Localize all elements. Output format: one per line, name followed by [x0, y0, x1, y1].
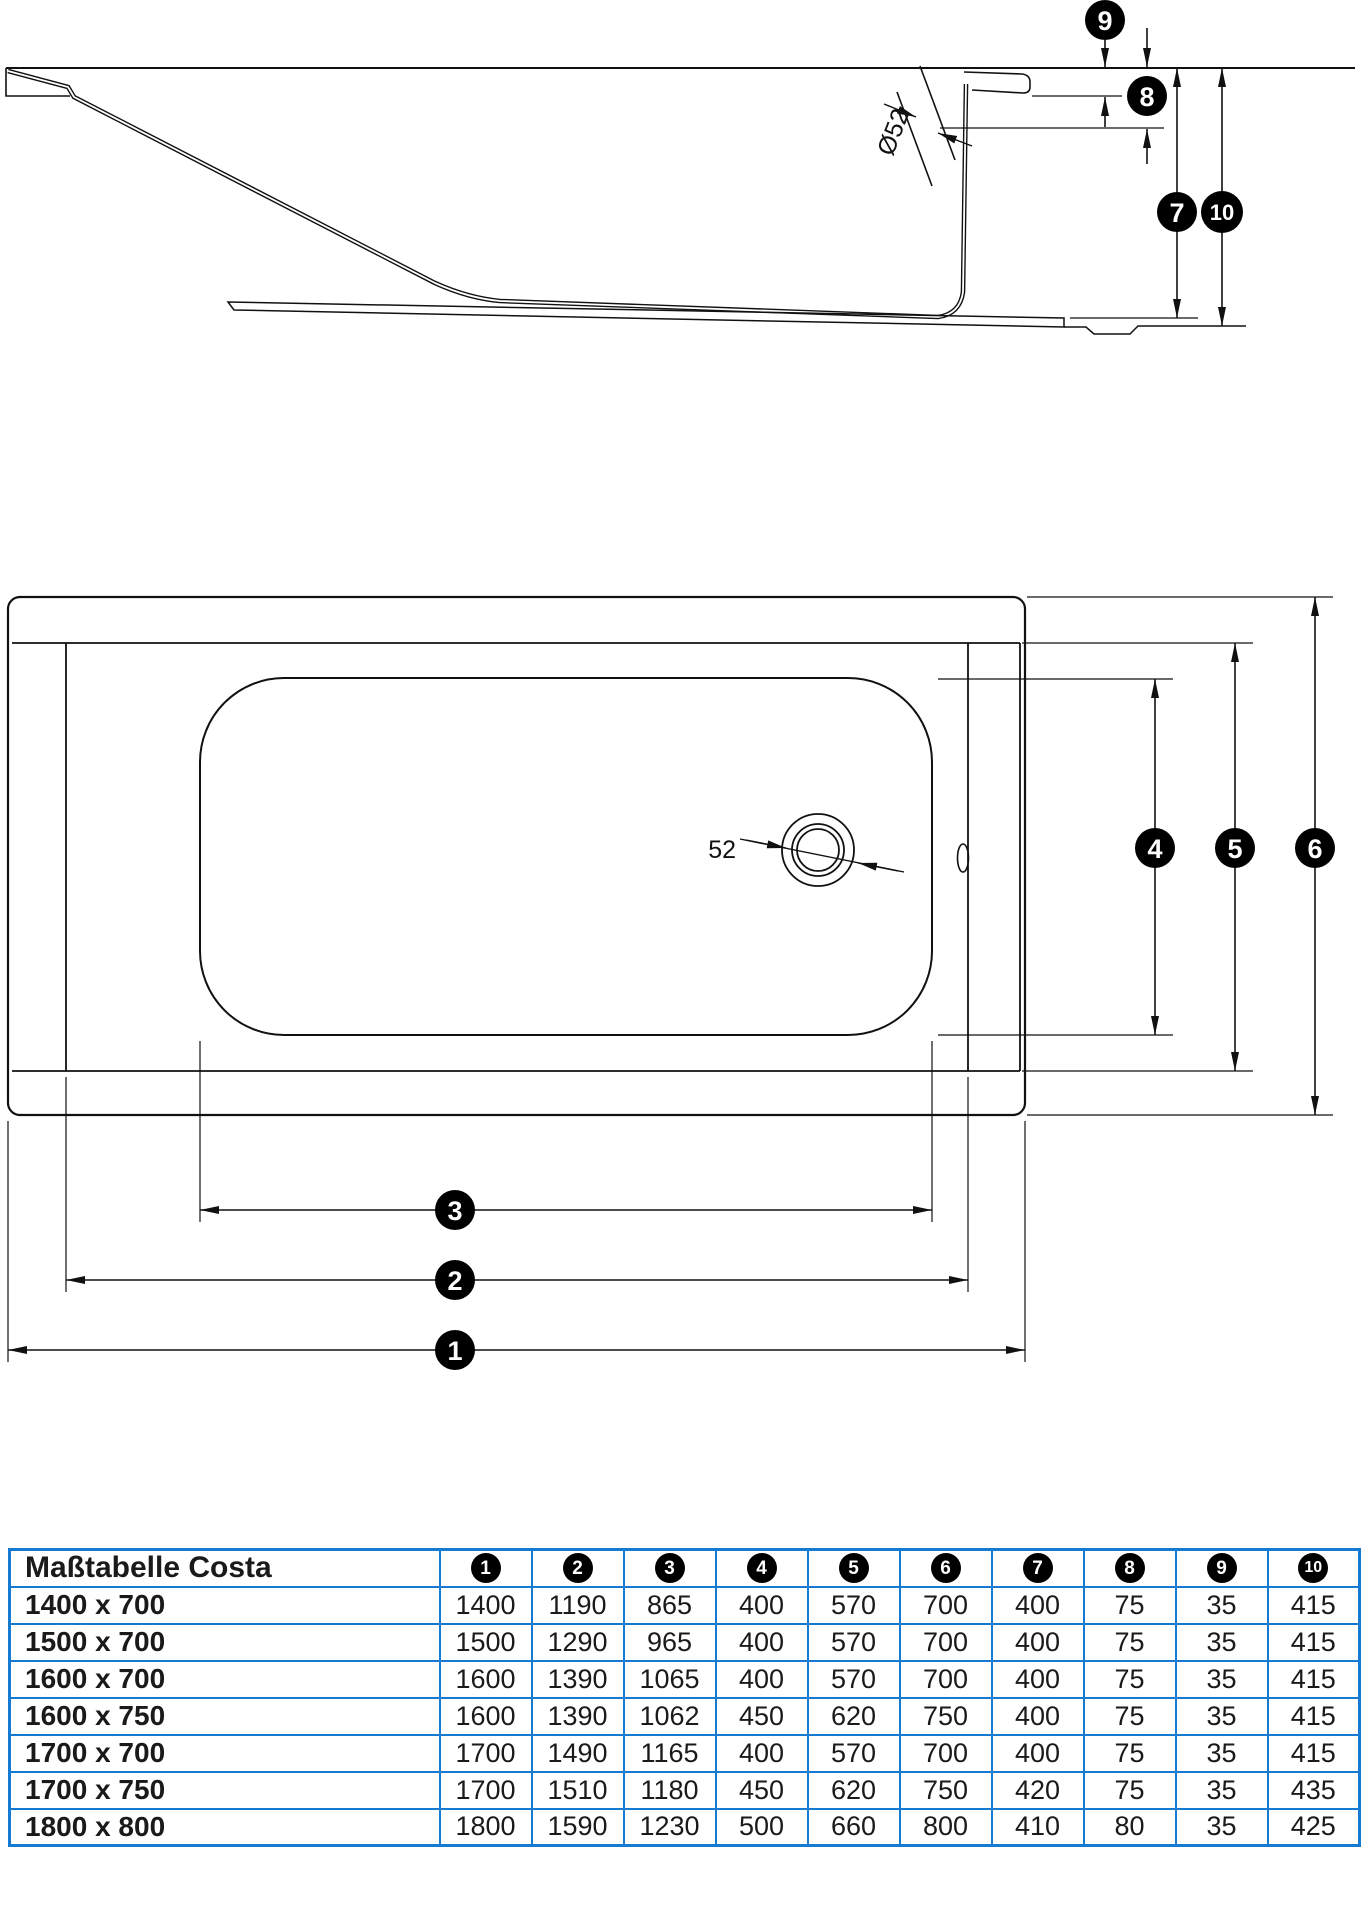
table-cell: 35	[1176, 1809, 1268, 1846]
callout-8-badge: 8	[1127, 76, 1167, 116]
table-row: 1400 x 700 1400 1190 865 400 570 700 400…	[10, 1587, 1360, 1624]
table-cell: 620	[808, 1772, 900, 1809]
table-cell: 450	[716, 1698, 808, 1735]
column-9-badge: 9	[1207, 1553, 1237, 1583]
callout-7-badge: 7	[1157, 192, 1197, 232]
table-row: 1500 x 700 1500 1290 965 400 570 700 400…	[10, 1624, 1360, 1661]
column-1-badge: 1	[471, 1553, 501, 1583]
table-cell: 750	[900, 1698, 992, 1735]
svg-text:7: 7	[1169, 198, 1184, 228]
table-cell: 35	[1176, 1661, 1268, 1698]
top-view-labels: 52 4 5 6 3 2 1	[435, 828, 1335, 1370]
column-header-7: 7	[992, 1550, 1084, 1587]
callout-2-badge: 2	[435, 1260, 475, 1300]
column-header-8: 8	[1084, 1550, 1176, 1587]
column-6-badge: 6	[931, 1553, 961, 1583]
table-cell: 410	[992, 1809, 1084, 1846]
column-header-10: 10	[1268, 1550, 1360, 1587]
column-8-badge: 8	[1115, 1553, 1145, 1583]
table-cell: 570	[808, 1587, 900, 1624]
callout-4-badge: 4	[1135, 828, 1175, 868]
table-row: 1700 x 700 1700 1490 1165 400 570 700 40…	[10, 1735, 1360, 1772]
table-cell: 800	[900, 1809, 992, 1846]
table-cell: 1700	[440, 1735, 532, 1772]
table-cell: 1390	[532, 1661, 624, 1698]
table-cell: 400	[992, 1624, 1084, 1661]
svg-text:5: 5	[1227, 834, 1242, 864]
row-size-label: 1700 x 750	[10, 1772, 440, 1809]
column-4-badge: 4	[747, 1553, 777, 1583]
table-cell: 1290	[532, 1624, 624, 1661]
column-header-4: 4	[716, 1550, 808, 1587]
svg-text:10: 10	[1210, 200, 1234, 225]
svg-text:3: 3	[447, 1196, 462, 1226]
column-3-badge: 3	[655, 1553, 685, 1583]
table-cell: 1180	[624, 1772, 716, 1809]
table-cell: 75	[1084, 1661, 1176, 1698]
overflow-slot	[958, 844, 969, 872]
table-cell: 1600	[440, 1661, 532, 1698]
table-cell: 1700	[440, 1772, 532, 1809]
table-cell: 660	[808, 1809, 900, 1846]
svg-text:6: 6	[1307, 834, 1322, 864]
row-size-label: 1600 x 750	[10, 1698, 440, 1735]
table-cell: 400	[992, 1698, 1084, 1735]
overflow-line-upper	[920, 66, 955, 160]
table-cell: 35	[1176, 1772, 1268, 1809]
table-cell: 400	[716, 1661, 808, 1698]
tub-profile-outer	[8, 71, 966, 317]
column-2-badge: 2	[563, 1553, 593, 1583]
outer-rim-rect	[8, 597, 1025, 1115]
table-cell: 570	[808, 1624, 900, 1661]
table-cell: 80	[1084, 1809, 1176, 1846]
table-cell: 400	[716, 1587, 808, 1624]
callout-6-badge: 6	[1295, 828, 1335, 868]
right-rim-fold	[964, 72, 1030, 93]
table-cell: 1490	[532, 1735, 624, 1772]
table-cell: 75	[1084, 1735, 1176, 1772]
page: Ø52 9 8 7 10	[0, 0, 1367, 1920]
diameter-label: Ø52	[872, 105, 915, 159]
column-header-2: 2	[532, 1550, 624, 1587]
table-cell: 1190	[532, 1587, 624, 1624]
table-cell: 1065	[624, 1661, 716, 1698]
table-cell: 1390	[532, 1698, 624, 1735]
table-row: 1800 x 800 1800 1590 1230 500 660 800 41…	[10, 1809, 1360, 1846]
table-cell: 1230	[624, 1809, 716, 1846]
row-size-label: 1400 x 700	[10, 1587, 440, 1624]
side-view-labels: Ø52 9 8 7 10	[872, 0, 1243, 233]
table-cell: 35	[1176, 1698, 1268, 1735]
callout-9-badge: 9	[1085, 0, 1125, 40]
table-cell: 400	[992, 1735, 1084, 1772]
callout-1-badge: 1	[435, 1330, 475, 1370]
table-cell: 865	[624, 1587, 716, 1624]
table-cell: 415	[1268, 1735, 1360, 1772]
table-cell: 435	[1268, 1772, 1360, 1809]
table-cell: 1600	[440, 1698, 532, 1735]
table-row: 1600 x 750 1600 1390 1062 450 620 750 40…	[10, 1698, 1360, 1735]
table-cell: 570	[808, 1661, 900, 1698]
column-10-badge: 10	[1298, 1553, 1328, 1583]
table-row: 1700 x 750 1700 1510 1180 450 620 750 42…	[10, 1772, 1360, 1809]
column-header-1: 1	[440, 1550, 532, 1587]
column-5-badge: 5	[839, 1553, 869, 1583]
column-header-9: 9	[1176, 1550, 1268, 1587]
drain-diameter-label: 52	[708, 836, 736, 864]
table-cell: 750	[900, 1772, 992, 1809]
table-cell: 1500	[440, 1624, 532, 1661]
table-cell: 35	[1176, 1587, 1268, 1624]
svg-text:9: 9	[1097, 6, 1112, 36]
table-cell: 1062	[624, 1698, 716, 1735]
table-cell: 700	[900, 1661, 992, 1698]
table-cell: 420	[992, 1772, 1084, 1809]
column-7-badge: 7	[1023, 1553, 1053, 1583]
table-cell: 500	[716, 1809, 808, 1846]
column-header-5: 5	[808, 1550, 900, 1587]
svg-text:2: 2	[447, 1266, 462, 1296]
top-view	[8, 597, 1333, 1362]
column-header-6: 6	[900, 1550, 992, 1587]
drain-arrow-left	[746, 840, 786, 848]
table-cell: 75	[1084, 1624, 1176, 1661]
table-cell: 1165	[624, 1735, 716, 1772]
svg-text:8: 8	[1139, 82, 1154, 112]
row-size-label: 1800 x 800	[10, 1809, 440, 1846]
table-cell: 415	[1268, 1624, 1360, 1661]
table-cell: 35	[1176, 1624, 1268, 1661]
table-cell: 1800	[440, 1809, 532, 1846]
table-cell: 1510	[532, 1772, 624, 1809]
drain	[740, 814, 904, 886]
table-cell: 415	[1268, 1698, 1360, 1735]
row-size-label: 1600 x 700	[10, 1661, 440, 1698]
svg-text:4: 4	[1147, 834, 1162, 864]
column-header-3: 3	[624, 1550, 716, 1587]
callout-5-badge: 5	[1215, 828, 1255, 868]
table-row: 1600 x 700 1600 1390 1065 400 570 700 40…	[10, 1661, 1360, 1698]
svg-text:1: 1	[447, 1336, 462, 1366]
table-cell: 700	[900, 1735, 992, 1772]
table-cell: 400	[716, 1624, 808, 1661]
table-cell: 700	[900, 1587, 992, 1624]
row-size-label: 1500 x 700	[10, 1624, 440, 1661]
table-cell: 415	[1268, 1587, 1360, 1624]
table-cell: 1590	[532, 1809, 624, 1846]
table-cell: 965	[624, 1624, 716, 1661]
tub-profile-inner	[8, 71, 966, 317]
table-cell: 700	[900, 1624, 992, 1661]
table-cell: 620	[808, 1698, 900, 1735]
table-cell: 400	[992, 1587, 1084, 1624]
table-header-row: Maßtabelle Costa 1 2 3 4 5 6 7 8 9 10	[10, 1550, 1360, 1587]
table-cell: 425	[1268, 1809, 1360, 1846]
drain-arrow-right	[858, 863, 898, 871]
table-cell: 75	[1084, 1587, 1176, 1624]
row-size-label: 1700 x 700	[10, 1735, 440, 1772]
floor-baseline	[1064, 326, 1246, 334]
dimension-table: Maßtabelle Costa 1 2 3 4 5 6 7 8 9 10 14…	[8, 1548, 1361, 1847]
table-cell: 35	[1176, 1735, 1268, 1772]
table-cell: 415	[1268, 1661, 1360, 1698]
table-cell: 75	[1084, 1698, 1176, 1735]
table-cell: 400	[992, 1661, 1084, 1698]
table-cell: 1400	[440, 1587, 532, 1624]
table-cell: 570	[808, 1735, 900, 1772]
callout-10-badge: 10	[1201, 191, 1243, 233]
table-cell: 450	[716, 1772, 808, 1809]
side-view	[6, 28, 1355, 334]
bathtub-technical-drawing: Ø52 9 8 7 10	[0, 0, 1367, 1460]
callout-3-badge: 3	[435, 1190, 475, 1230]
table-cell: 400	[716, 1735, 808, 1772]
table-cell: 75	[1084, 1772, 1176, 1809]
basin-rect	[200, 678, 932, 1035]
table-title: Maßtabelle Costa	[10, 1550, 440, 1587]
